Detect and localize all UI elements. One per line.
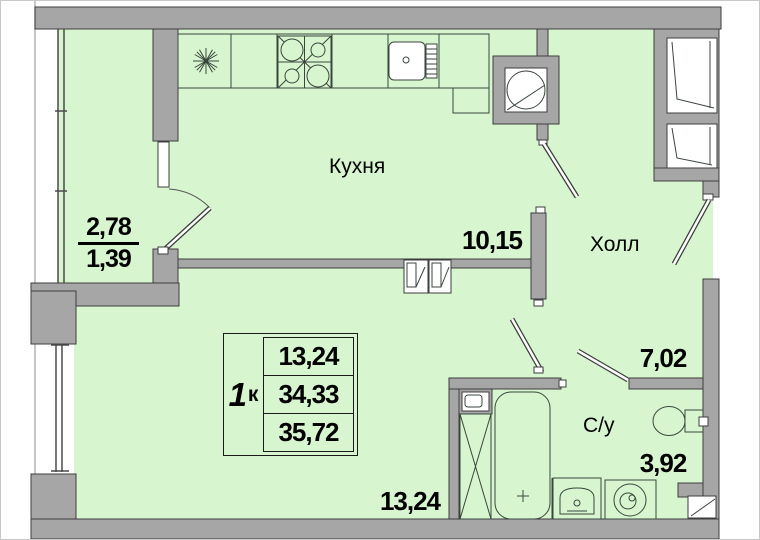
kitchen-label: Кухня xyxy=(329,156,385,177)
summary-values: 13,24 34,33 35,72 xyxy=(263,337,354,452)
wall-bottom xyxy=(31,519,719,539)
wall-left-lower xyxy=(31,474,76,519)
wall-right-ledge xyxy=(654,168,719,181)
vent-shaft-stub-bottom xyxy=(537,124,548,140)
wall-hall-bath xyxy=(629,378,703,389)
rooms-count-cell: 1 к xyxy=(224,334,263,455)
living-area-value: 13,24 xyxy=(264,338,353,375)
wall-top xyxy=(35,7,721,29)
living-room-area: 13,24 xyxy=(377,488,443,514)
wall-right-main xyxy=(703,279,719,519)
summary-table: 1 к 13,24 34,33 35,72 xyxy=(223,333,358,456)
rooms-unit: к xyxy=(248,383,259,407)
hall-label: Холл xyxy=(590,234,640,255)
wall-left-upper xyxy=(31,291,76,344)
area-without-balcony-value: 34,33 xyxy=(264,375,353,413)
rooms-count: 1 xyxy=(229,376,247,414)
kitchen-area: 10,15 xyxy=(457,227,527,253)
hall-area: 7,02 xyxy=(630,345,696,371)
wall-nook xyxy=(531,213,546,299)
stove-icon xyxy=(278,36,331,88)
wall-kitchen-living xyxy=(178,259,534,268)
balcony-area-total: 2,78 xyxy=(78,215,139,245)
wall-balcony-divider-upper xyxy=(153,29,178,141)
wall-bottom-right-step xyxy=(678,483,703,497)
living-room-window xyxy=(51,344,69,472)
bathroom-area: 3,92 xyxy=(630,450,696,476)
balcony-area-coef: 1,39 xyxy=(78,245,139,272)
vent-shaft-icon xyxy=(505,68,547,112)
water-heater-icon xyxy=(459,389,492,414)
living-floor xyxy=(74,306,184,519)
total-area-value: 35,72 xyxy=(264,413,353,451)
floor-plan: Кухня 10,15 Холл 7,02 С/у 3,92 13,24 2,7… xyxy=(0,0,760,540)
wall-bath-top xyxy=(449,378,561,389)
ceiling-light-icon xyxy=(193,48,219,74)
kitchen-sink-icon xyxy=(389,42,437,80)
wall-niches xyxy=(404,260,451,293)
wall-bath-left xyxy=(449,378,459,519)
vent-shaft-stub-top xyxy=(537,29,548,56)
bathroom-label: С/у xyxy=(583,415,615,436)
balcony-area-fraction: 2,78 1,39 xyxy=(78,215,139,272)
